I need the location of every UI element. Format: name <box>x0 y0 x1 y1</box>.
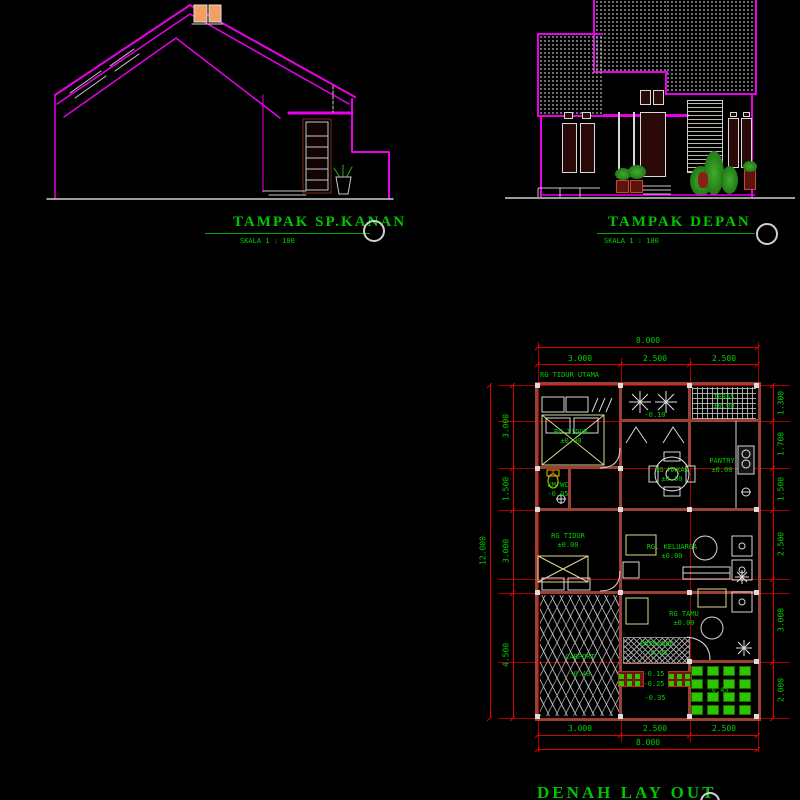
room-label-bedroom2: RG TIDUR ±0.00 <box>546 532 590 550</box>
wall <box>619 593 622 718</box>
wall <box>688 660 758 663</box>
spot-level-courtyard: -0.10 <box>640 411 670 420</box>
dim-label: 3.000 <box>776 600 786 640</box>
column-marker <box>535 590 540 595</box>
dim-label: 2.500 <box>635 354 675 364</box>
dim-label: 1.300 <box>776 383 786 423</box>
column-marker <box>618 714 623 719</box>
room-label-kmwc: KM/WC -0.05 <box>540 481 576 499</box>
dim-line-right-seg <box>773 385 774 718</box>
title-bubble <box>700 792 720 800</box>
column-marker <box>687 590 692 595</box>
column-marker <box>618 590 623 595</box>
front-elevation-title: TAMPAK DEPAN <box>608 214 751 231</box>
dim-label: 2.500 <box>704 724 744 734</box>
plan-title: DENAH LAY OUT <box>537 783 716 800</box>
column-marker <box>754 507 759 512</box>
dim-label-left-total: 12.000 <box>478 528 488 574</box>
wall <box>538 466 621 469</box>
shrub <box>739 666 751 676</box>
dim-label: 2.500 <box>776 524 786 564</box>
dim-label: 3.000 <box>560 724 600 734</box>
title-underline <box>597 233 755 234</box>
front-window-left-2 <box>580 123 595 173</box>
plant-blob <box>743 161 757 172</box>
spot-level-garden: -0.45 <box>703 686 733 695</box>
dim-tick <box>487 716 493 722</box>
column-marker <box>754 714 759 719</box>
shrub <box>739 705 751 715</box>
wall <box>688 421 691 466</box>
front-window-center-2 <box>653 90 664 105</box>
column-marker <box>754 590 759 595</box>
front-window-left-1 <box>562 123 577 173</box>
plant-blob <box>721 166 738 194</box>
dim-line-left-seg <box>513 385 514 718</box>
room-label-guest: RG TAMU ±0.00 <box>662 610 706 628</box>
dim-label: 3.000 <box>501 406 511 446</box>
front-vent-left-2 <box>582 112 591 119</box>
room-label-family: RG. KELUARGA ±0.00 <box>644 543 700 561</box>
column-marker <box>754 383 759 388</box>
wall <box>688 386 691 421</box>
spot-level-step3: -0.35 <box>640 694 670 703</box>
room-label-pantry: PANTRY ±0.00 <box>698 457 746 475</box>
shrub <box>723 705 735 715</box>
plant-pot <box>630 180 643 193</box>
shrub <box>739 692 751 702</box>
dim-label-top-total: 8.000 <box>633 336 663 346</box>
dim-label: 3.000 <box>501 531 511 571</box>
column-marker <box>687 383 692 388</box>
room-label-teras: TERAS ±0.00 <box>702 393 746 411</box>
room-label-dining: RG MAKAN ±0.00 <box>648 466 696 484</box>
wall <box>538 508 758 511</box>
porch-planter-right <box>668 671 692 687</box>
column-marker <box>618 507 623 512</box>
shrub <box>707 666 719 676</box>
title-underline <box>205 233 370 234</box>
shrub <box>707 705 719 715</box>
front-vent-right-1 <box>730 112 737 117</box>
front-window-center-1 <box>640 90 651 105</box>
shrub <box>691 679 703 689</box>
dim-label: 4.500 <box>501 635 511 675</box>
wall <box>619 386 622 510</box>
front-roof-main-right <box>666 0 757 95</box>
column-marker <box>618 383 623 388</box>
dim-line-bottom-total <box>538 749 758 750</box>
column-marker <box>535 714 540 719</box>
title-bubble <box>363 220 385 242</box>
shrub <box>691 705 703 715</box>
front-roof-left <box>537 33 603 117</box>
room-label-bedroom1: RG TIDUR ±0.00 <box>549 428 593 446</box>
side-elevation-scale: SKALA 1 : 100 <box>240 237 295 246</box>
front-vent-right-2 <box>743 112 750 117</box>
column-marker <box>687 507 692 512</box>
column-marker <box>754 659 759 664</box>
dim-line-bottom-seg <box>538 735 758 736</box>
spot-level-step1: -0.15 <box>641 670 667 679</box>
dim-label: 2.500 <box>704 354 744 364</box>
front-roof-main-left <box>593 0 668 73</box>
dim-label: 1.500 <box>776 469 786 509</box>
front-window-right-1 <box>728 118 739 168</box>
cad-sheet: 8.000 3.000 2.500 2.500 3.000 2.500 2.50… <box>0 0 800 800</box>
dim-label: 1.500 <box>501 469 511 509</box>
plant-blob <box>628 165 646 179</box>
zone-label: RG TIDUR UTAMA <box>540 371 599 380</box>
room-label-carport: CARPORT -0.40 <box>556 649 604 683</box>
dim-label: 1.700 <box>776 424 786 464</box>
dim-line-top-total <box>538 347 758 348</box>
column-marker <box>687 659 692 664</box>
room-label-entrance: ENTRANCE -0.05 <box>628 640 686 658</box>
column-marker <box>618 466 623 471</box>
column-marker <box>687 714 692 719</box>
column-marker <box>535 383 540 388</box>
front-vent-left-1 <box>564 112 573 119</box>
plant-pot <box>744 170 756 190</box>
front-mullion-1 <box>618 112 620 177</box>
shrub <box>739 679 751 689</box>
dim-label: 3.000 <box>560 354 600 364</box>
dim-label: 2.000 <box>776 670 786 710</box>
red-plant <box>698 172 708 188</box>
wall <box>538 591 758 594</box>
plant-pot <box>616 180 629 193</box>
title-bubble <box>756 223 778 245</box>
dim-label: 2.500 <box>635 724 675 734</box>
spot-level-step2: -0.25 <box>641 680 667 689</box>
dim-line-left-total <box>490 385 491 718</box>
side-elevation-drawing <box>47 5 393 199</box>
shrub <box>691 692 703 702</box>
dim-label-bottom-total: 8.000 <box>633 738 663 748</box>
column-marker <box>535 507 540 512</box>
shrub <box>691 666 703 676</box>
front-elevation-scale: SKALA 1 : 100 <box>604 237 659 246</box>
wall <box>619 510 622 593</box>
shrub <box>723 666 735 676</box>
column-marker <box>535 466 540 471</box>
